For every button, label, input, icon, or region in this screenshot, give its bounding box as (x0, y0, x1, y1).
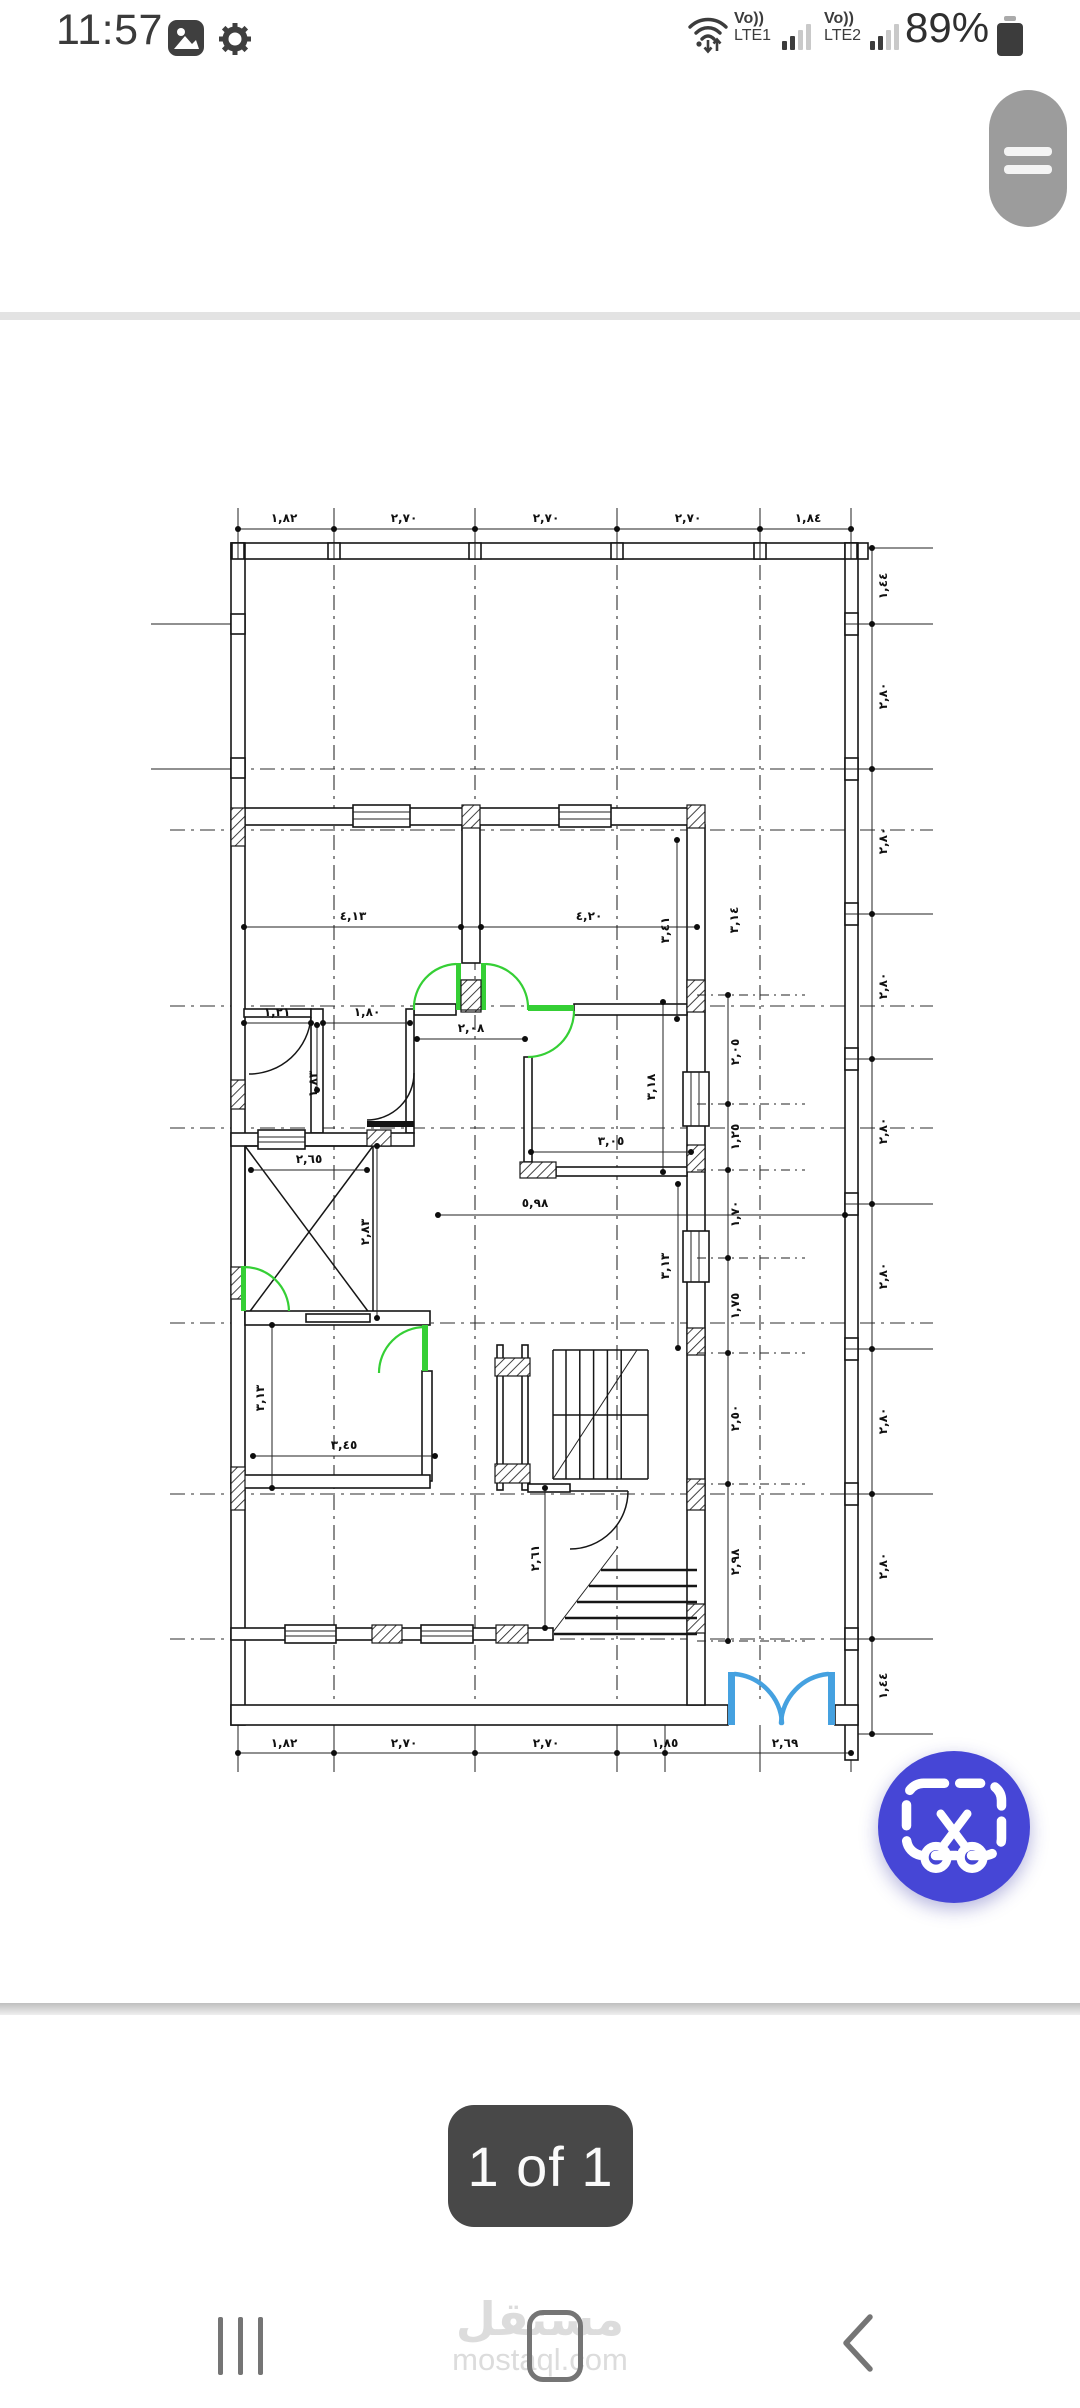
recents-icon (238, 2317, 243, 2375)
gear-icon (216, 20, 254, 58)
screenshot-crop-fab[interactable] (878, 1751, 1030, 1903)
clock: 11:57 (56, 6, 163, 55)
wifi-icon (686, 14, 730, 59)
signal-bars-sim1 (782, 24, 811, 50)
svg-text:١,٨٢: ١,٨٢ (271, 511, 298, 525)
staircase (553, 1350, 697, 1634)
svg-text:٢,٦٥: ٢,٦٥ (296, 1152, 323, 1166)
page-indicator-text: 1 of 1 (467, 2134, 613, 2199)
recents-button[interactable] (218, 2317, 263, 2375)
svg-text:٢,٨٠: ٢,٨٠ (876, 1263, 890, 1290)
svg-text:٢,٨٠: ٢,٨٠ (876, 683, 890, 710)
image-icon (168, 20, 204, 56)
svg-text:٣,١٣: ٣,١٣ (658, 1252, 672, 1279)
svg-text:١,٧٥: ١,٧٥ (728, 1293, 742, 1320)
back-chevron-icon (836, 2312, 880, 2374)
svg-text:٢,٧٠: ٢,٧٠ (675, 511, 702, 525)
battery-icon (997, 16, 1023, 56)
svg-text:٢,٨٠: ٢,٨٠ (876, 828, 890, 855)
handle-line (1004, 165, 1052, 174)
gallery-notification-icon (168, 20, 204, 56)
volte-lte1-label: Vo)) LTE1 (734, 10, 771, 44)
crop-scissors-icon (878, 1751, 1030, 1903)
svg-text:٢,٦٩: ٢,٦٩ (772, 1736, 799, 1750)
dimension-labels: ١,٨٢٢,٧٠٢,٧٠٢,٧٠١,٨٤١,٨٢٢,٧٠٢,٧٠١,٨٥٢,٦٩… (253, 511, 890, 1750)
status-bar: 11:57 (0, 0, 1080, 64)
recents-icon (218, 2317, 223, 2375)
svg-text:١,٨٠: ١,٨٠ (354, 1005, 381, 1019)
svg-text:٢,٧٠: ٢,٧٠ (391, 1736, 418, 1750)
svg-text:٢,٨٣: ٢,٨٣ (358, 1218, 372, 1245)
svg-text:٤,١٣: ٤,١٣ (340, 909, 367, 923)
floor-plan-image[interactable]: ١,٨٢٢,٧٠٢,٧٠٢,٧٠١,٨٤١,٨٢٢,٧٠٢,٧٠١,٨٥٢,٦٩… (145, 480, 945, 1780)
svg-text:٣,١٣: ٣,١٣ (253, 1384, 267, 1411)
svg-text:١,٨٤: ١,٨٤ (795, 511, 822, 525)
windows-group (258, 805, 709, 1643)
entrance-double-door-blue (728, 1672, 835, 1725)
svg-text:٢,٩٨: ٢,٩٨ (728, 1548, 742, 1575)
svg-text:١,٤٤: ١,٤٤ (876, 573, 890, 600)
svg-text:٣,٤٥: ٣,٤٥ (331, 1438, 358, 1452)
svg-text:١,٢٥: ١,٢٥ (728, 1124, 742, 1151)
bottom-divider (0, 2003, 1080, 2015)
volte-lte2-label: Vo)) LTE2 (824, 10, 861, 44)
svg-text:٢,٨٠: ٢,٨٠ (876, 1553, 890, 1580)
page-indicator-badge: 1 of 1 (448, 2105, 633, 2227)
svg-text:٢,٦١: ٢,٦١ (528, 1545, 542, 1572)
svg-text:١,٨٥: ١,٨٥ (652, 1736, 679, 1750)
back-button[interactable] (836, 2312, 880, 2379)
settings-notification-icon (216, 20, 254, 58)
svg-text:١,٢١: ١,٢١ (264, 1005, 291, 1019)
svg-text:١,٤٤: ١,٤٤ (876, 1673, 890, 1700)
svg-text:٣,١٤: ٣,١٤ (727, 907, 741, 934)
svg-text:٥,٩٨: ٥,٩٨ (522, 1196, 549, 1210)
floor-plan-svg: ١,٨٢٢,٧٠٢,٧٠٢,٧٠١,٨٤١,٨٢٢,٧٠٢,٧٠١,٨٥٢,٦٩… (145, 480, 945, 1780)
edge-panel-handle[interactable] (989, 90, 1067, 227)
svg-text:١,٨٢: ١,٨٢ (271, 1736, 298, 1750)
svg-text:٢,٨٠: ٢,٨٠ (876, 1118, 890, 1145)
signal-bars-sim2 (870, 24, 899, 50)
svg-text:٢,٨٠: ٢,٨٠ (876, 973, 890, 1000)
svg-text:٤,٢٠: ٤,٢٠ (576, 909, 603, 923)
handle-line (1004, 147, 1052, 156)
svg-text:٣,١٨: ٣,١٨ (644, 1073, 658, 1100)
top-divider (0, 312, 1080, 320)
svg-text:١,٧٠: ١,٧٠ (728, 1201, 742, 1228)
svg-text:٢,٥٠: ٢,٥٠ (728, 1405, 742, 1432)
svg-text:٢,٧٠: ٢,٧٠ (533, 511, 560, 525)
svg-text:٢,٠٥: ٢,٠٥ (728, 1039, 742, 1066)
svg-text:١,٨٣: ١,٨٣ (306, 1070, 320, 1097)
svg-text:٢,٧٠: ٢,٧٠ (533, 1736, 560, 1750)
recents-icon (258, 2317, 263, 2375)
svg-text:٢,٠٨: ٢,٠٨ (458, 1021, 485, 1035)
home-button[interactable] (527, 2310, 583, 2382)
svg-text:٢,٨٠: ٢,٨٠ (876, 1408, 890, 1435)
battery-percent: 89% (905, 4, 989, 52)
navigation-bar (0, 2290, 1080, 2408)
svg-text:٣,٤١: ٣,٤١ (658, 917, 672, 944)
svg-text:٣,٠٥: ٣,٠٥ (598, 1134, 625, 1148)
svg-text:٢,٧٠: ٢,٧٠ (391, 511, 418, 525)
